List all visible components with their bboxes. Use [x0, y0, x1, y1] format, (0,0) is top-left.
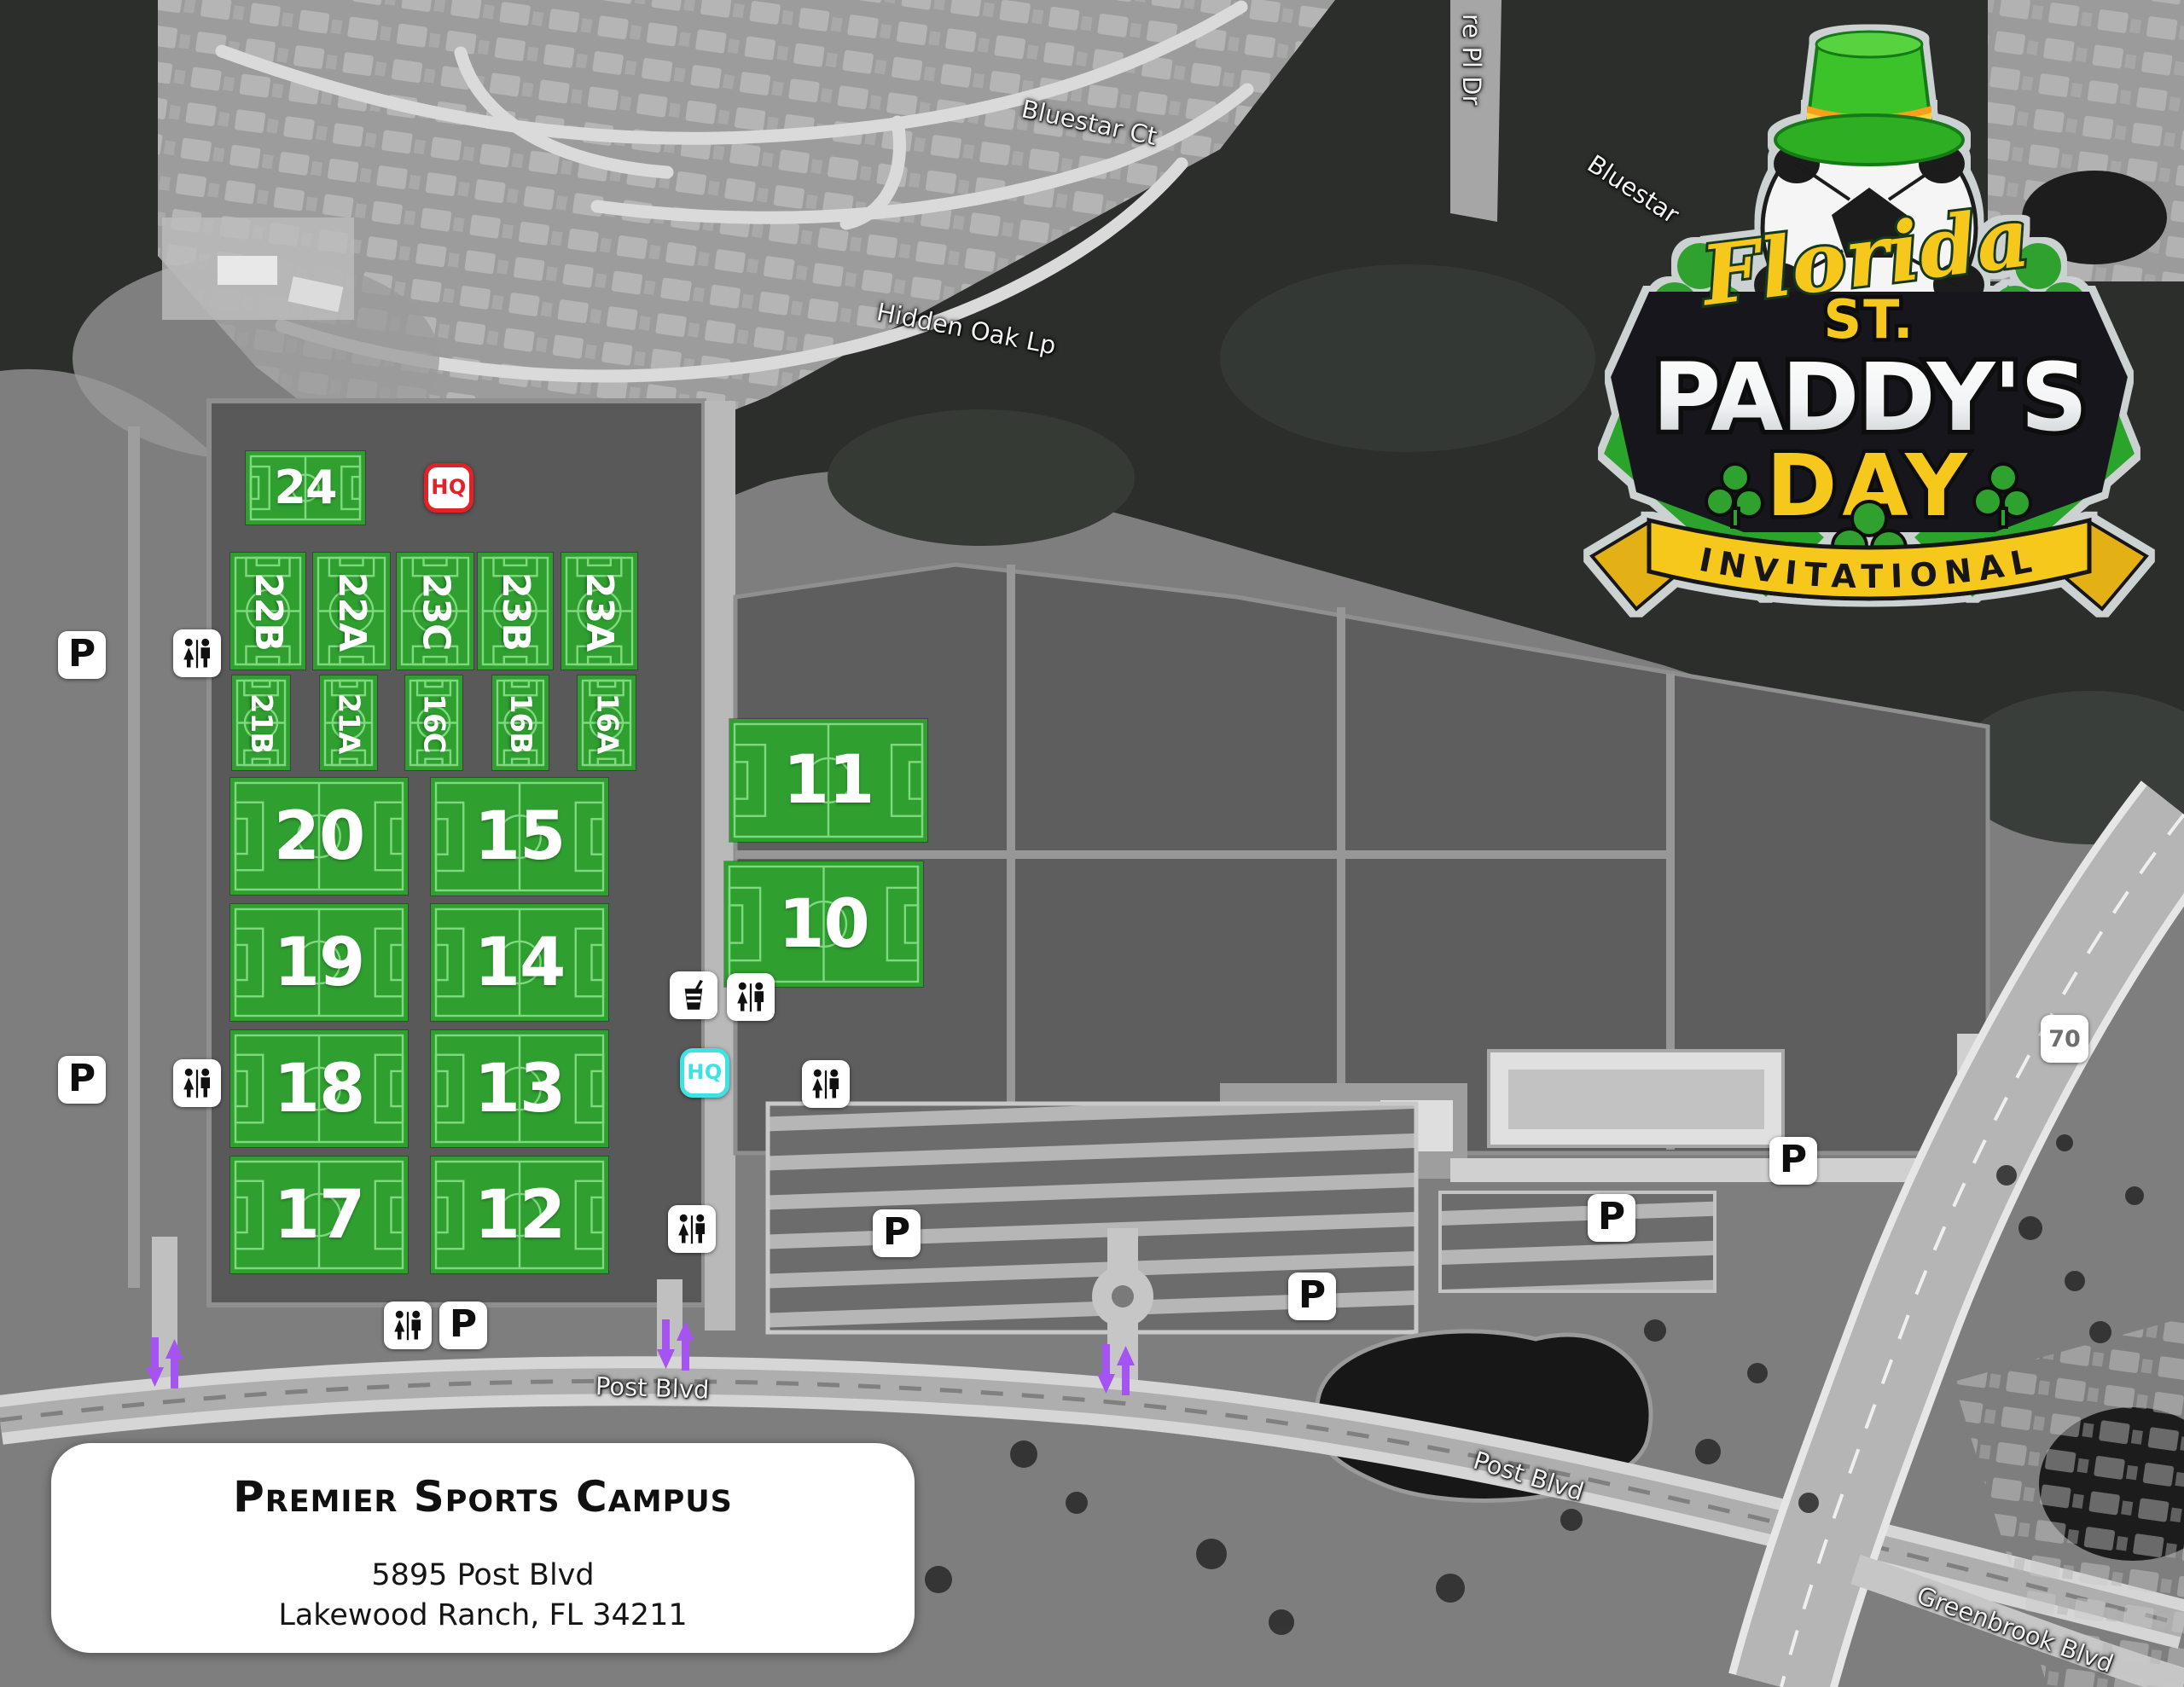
- parking-letter: P: [450, 1302, 477, 1346]
- parking-letter: P: [883, 1210, 910, 1254]
- entrance-arrows-marker: [657, 1318, 694, 1372]
- field-20: 20: [230, 778, 408, 895]
- field-number: 23C: [416, 572, 454, 650]
- field-number: 23A: [581, 571, 619, 650]
- field-16c: 16C: [405, 675, 462, 770]
- street-label: Post Blvd: [595, 1371, 710, 1405]
- restroom-icon: [179, 636, 215, 670]
- entrance-arrows-marker: [146, 1336, 183, 1390]
- restroom-icon: [390, 1308, 426, 1342]
- parking-marker: P: [873, 1209, 921, 1257]
- street-label: re Pl Dr: [1457, 14, 1486, 105]
- venue-address: 5895 Post Blvd Lakewood Ranch, FL 34211: [278, 1556, 687, 1637]
- field-number: 22B: [249, 572, 287, 651]
- field-number: 16B: [506, 693, 535, 752]
- field-number: 21B: [247, 693, 276, 752]
- field-13: 13: [431, 1030, 608, 1147]
- field-number: 17: [274, 1182, 365, 1249]
- parking-letter: P: [1780, 1138, 1807, 1181]
- field-10: 10: [724, 861, 923, 987]
- restroom-marker: [173, 629, 221, 677]
- route-70-label: 70: [2048, 1026, 2081, 1052]
- concessions-icon: [678, 978, 709, 1012]
- route-70-shield: 70: [2041, 1015, 2088, 1063]
- hq-marker-teal: HQ: [680, 1048, 729, 1098]
- field-23c: 23C: [397, 553, 473, 670]
- field-21a: 21A: [320, 675, 377, 770]
- parking-marker: P: [439, 1301, 487, 1349]
- restroom-icon: [808, 1067, 844, 1101]
- entrance-arrows-icon: [1097, 1342, 1135, 1397]
- tournament-logo: Florida ST. PADDY'S DAY INVITATIONAL: [1568, 10, 2170, 619]
- hq-label: HQ: [431, 475, 467, 499]
- field-number: 12: [474, 1182, 566, 1249]
- field-23b: 23B: [478, 553, 553, 670]
- parking-marker: P: [1769, 1137, 1817, 1185]
- field-15: 15: [431, 778, 608, 896]
- venue-address-line2: Lakewood Ranch, FL 34211: [278, 1596, 687, 1636]
- leprechaun-hat-icon: [1775, 32, 1963, 165]
- field-23a: 23A: [561, 553, 637, 670]
- field-number: 21A: [334, 693, 363, 753]
- field-number: 18: [274, 1056, 365, 1122]
- field-24: 24: [246, 451, 365, 525]
- entrance-arrows-icon: [657, 1318, 694, 1372]
- field-number: 22A: [333, 571, 370, 650]
- entrance-arrows-icon: [146, 1336, 183, 1390]
- field-11: 11: [729, 719, 927, 842]
- parking-marker: P: [58, 1056, 106, 1104]
- parking-marker: P: [1588, 1194, 1635, 1242]
- field-number: 19: [274, 930, 365, 996]
- restroom-marker: [384, 1301, 432, 1349]
- field-number: 10: [778, 891, 869, 958]
- field-number: 16C: [420, 693, 449, 752]
- field-19: 19: [230, 904, 408, 1021]
- entrance-arrows-marker: [1097, 1342, 1135, 1397]
- restroom-icon: [733, 980, 769, 1014]
- field-number: 14: [474, 930, 566, 996]
- parking-marker: P: [58, 631, 106, 679]
- field-number: 23B: [497, 572, 534, 651]
- logo-st-text: ST.: [1823, 288, 1914, 351]
- field-number: 15: [474, 803, 566, 870]
- field-14: 14: [431, 904, 608, 1021]
- field-number: 11: [783, 747, 874, 814]
- concessions-marker: [670, 971, 717, 1019]
- field-number: 24: [274, 465, 336, 511]
- parking-marker: P: [1288, 1272, 1336, 1320]
- restroom-icon: [179, 1066, 215, 1100]
- venue-name: Premier Sports Campus: [233, 1472, 733, 1522]
- field-18: 18: [230, 1030, 408, 1147]
- venue-info-card: Premier Sports Campus 5895 Post Blvd Lak…: [51, 1443, 915, 1653]
- field-number: 13: [474, 1056, 566, 1122]
- parking-letter: P: [1298, 1273, 1326, 1317]
- restroom-marker: [668, 1205, 716, 1253]
- field-22a: 22A: [313, 553, 390, 670]
- restroom-icon: [674, 1212, 710, 1246]
- parking-letter: P: [68, 1057, 96, 1100]
- restroom-marker: [727, 973, 775, 1021]
- field-22b: 22B: [230, 553, 305, 670]
- field-number: 20: [274, 803, 365, 870]
- field-number: 16A: [592, 693, 621, 753]
- field-21b: 21B: [232, 675, 290, 770]
- field-17: 17: [230, 1157, 408, 1273]
- parking-letter: P: [68, 632, 96, 675]
- field-16b: 16B: [492, 675, 549, 770]
- hq-marker-red: HQ: [424, 463, 473, 513]
- parking-letter: P: [1598, 1195, 1625, 1238]
- restroom-marker: [173, 1059, 221, 1107]
- restroom-marker: [802, 1060, 850, 1108]
- field-16a: 16A: [578, 675, 636, 770]
- field-12: 12: [431, 1157, 608, 1273]
- hq-label: HQ: [687, 1060, 723, 1084]
- venue-address-line1: 5895 Post Blvd: [278, 1556, 687, 1596]
- event-field-map: 2422B22A23C23B23A21B21A16C16B16A20151119…: [0, 0, 2184, 1687]
